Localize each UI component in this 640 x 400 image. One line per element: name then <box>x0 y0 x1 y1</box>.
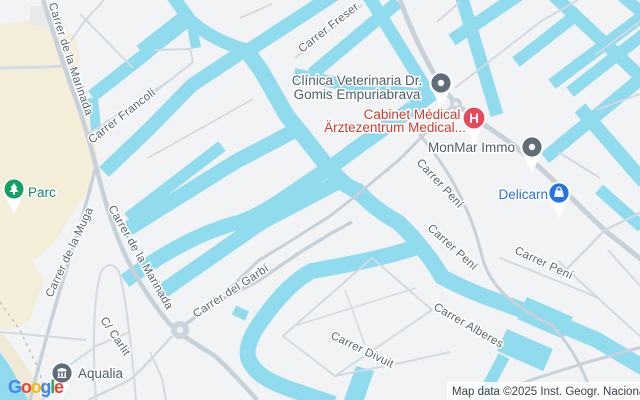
svg-text:Map data ©2025 Inst. Geogr. Na: Map data ©2025 Inst. Geogr. Nacional <box>452 386 640 398</box>
svg-text:Aqualia: Aqualia <box>78 366 124 381</box>
svg-text:H: H <box>469 111 479 126</box>
svg-text:Clínica Veterinaria Dr.: Clínica Veterinaria Dr. <box>292 73 423 88</box>
svg-text:MonMar Immo: MonMar Immo <box>428 140 515 155</box>
svg-text:Ärztezentrum Medical...: Ärztezentrum Medical... <box>324 120 466 135</box>
svg-text:Google: Google <box>8 377 64 397</box>
svg-text:Gomis Empuriabrava: Gomis Empuriabrava <box>294 87 421 102</box>
svg-text:Delicarn: Delicarn <box>498 187 548 202</box>
svg-text:Parc: Parc <box>28 185 56 200</box>
